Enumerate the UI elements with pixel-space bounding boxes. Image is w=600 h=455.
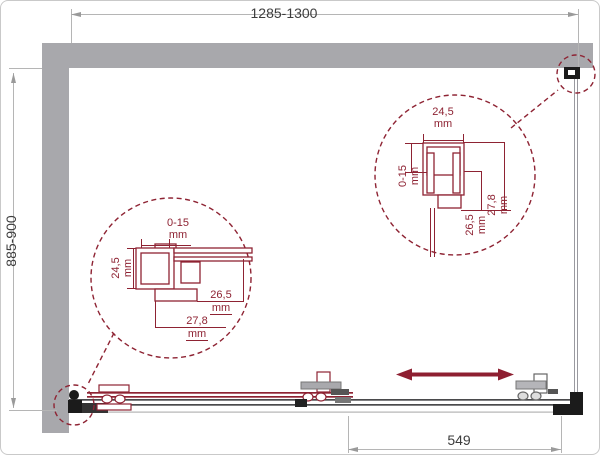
drawing-graphics xyxy=(1,1,600,455)
detail-leader-left xyxy=(87,333,114,386)
glass-panel-right xyxy=(575,79,578,405)
callout-left-outer-label: 27,8 mm xyxy=(175,315,219,341)
dim-overall-width-label: 1285-1300 xyxy=(234,5,334,21)
dim-door-width-label: 549 xyxy=(429,432,489,448)
detail-callout-circles xyxy=(54,55,595,425)
callout-left-adjust-label: 0-15 mm xyxy=(156,217,200,241)
right-end-bracket xyxy=(548,389,583,415)
middle-roller-assembly xyxy=(295,372,351,407)
callout-left-width-label: 24,5 mm xyxy=(110,245,134,291)
callout-right-width-label: 24,5 mm xyxy=(421,106,465,130)
callout-right-adjust-label: 0-15 mm xyxy=(397,153,421,199)
callout-right-inner-label: 26,5 mm xyxy=(464,202,488,248)
callout-left-inner-label: 26,5 mm xyxy=(199,289,243,315)
bottom-rail xyxy=(69,399,581,413)
dimension-lines xyxy=(9,9,579,453)
wall-top xyxy=(42,43,593,68)
technical-drawing-canvas: 1285-1300 885-900 549 0-15 mm 24,5 mm 26… xyxy=(0,0,600,455)
wall-left xyxy=(42,68,69,433)
right-roller xyxy=(516,374,547,400)
dim-overall-depth-label: 885-900 xyxy=(3,196,19,286)
detail-leader-right xyxy=(511,90,558,128)
top-right-wall-fitting xyxy=(564,67,580,79)
callout-right-outer-label: 27,8 mm xyxy=(486,182,510,228)
slide-direction-arrow xyxy=(396,369,514,381)
profile-section-right xyxy=(423,143,464,208)
dimension-arrowheads xyxy=(11,12,578,452)
